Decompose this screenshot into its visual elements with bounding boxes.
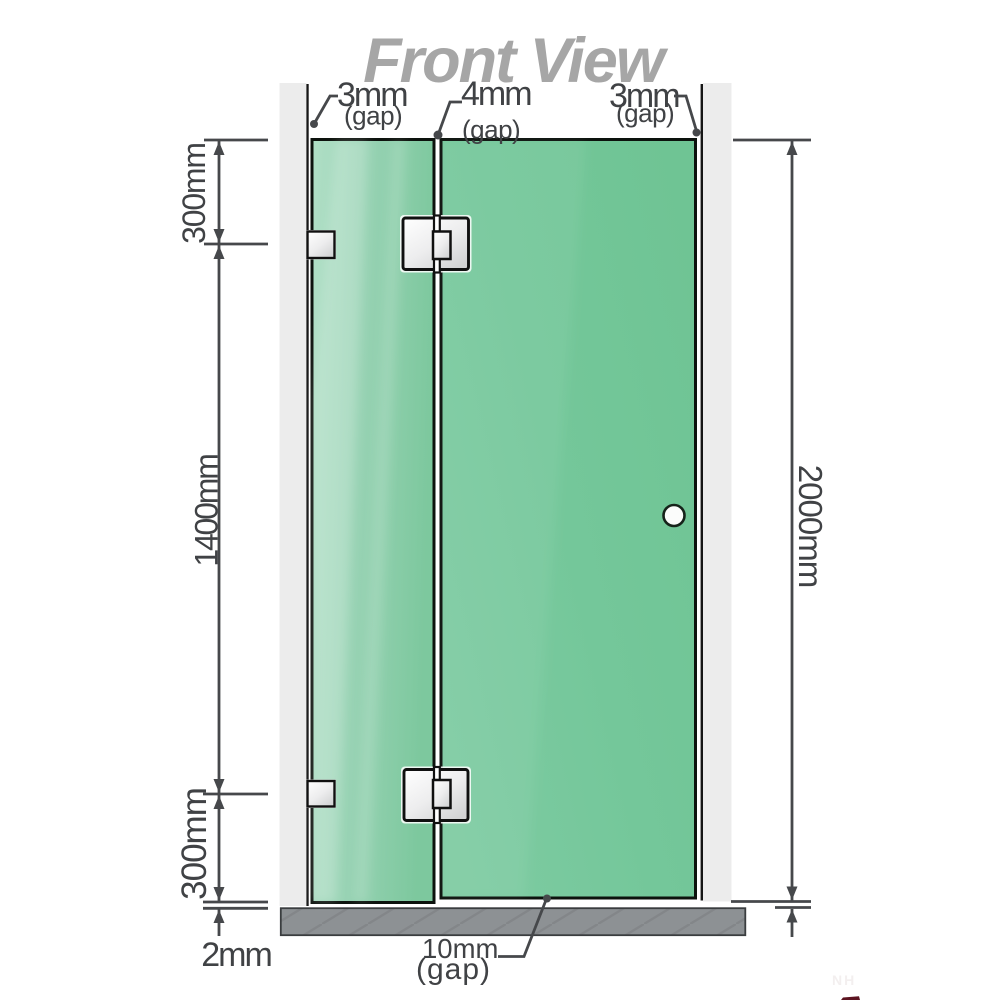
svg-text:(gap): (gap) [616,98,674,128]
svg-text:2mm: 2mm [201,936,271,974]
svg-text:2000mm: 2000mm [792,465,829,587]
svg-text:(gap): (gap) [462,115,520,145]
svg-text:1400mm: 1400mm [188,455,224,567]
svg-text:300mm: 300mm [175,788,214,900]
svg-text:NH: NH [832,972,856,988]
svg-text:(gap): (gap) [416,953,491,986]
svg-text:4mm: 4mm [461,75,531,113]
svg-text:300mm: 300mm [176,143,212,244]
svg-text:(gap): (gap) [344,101,402,131]
